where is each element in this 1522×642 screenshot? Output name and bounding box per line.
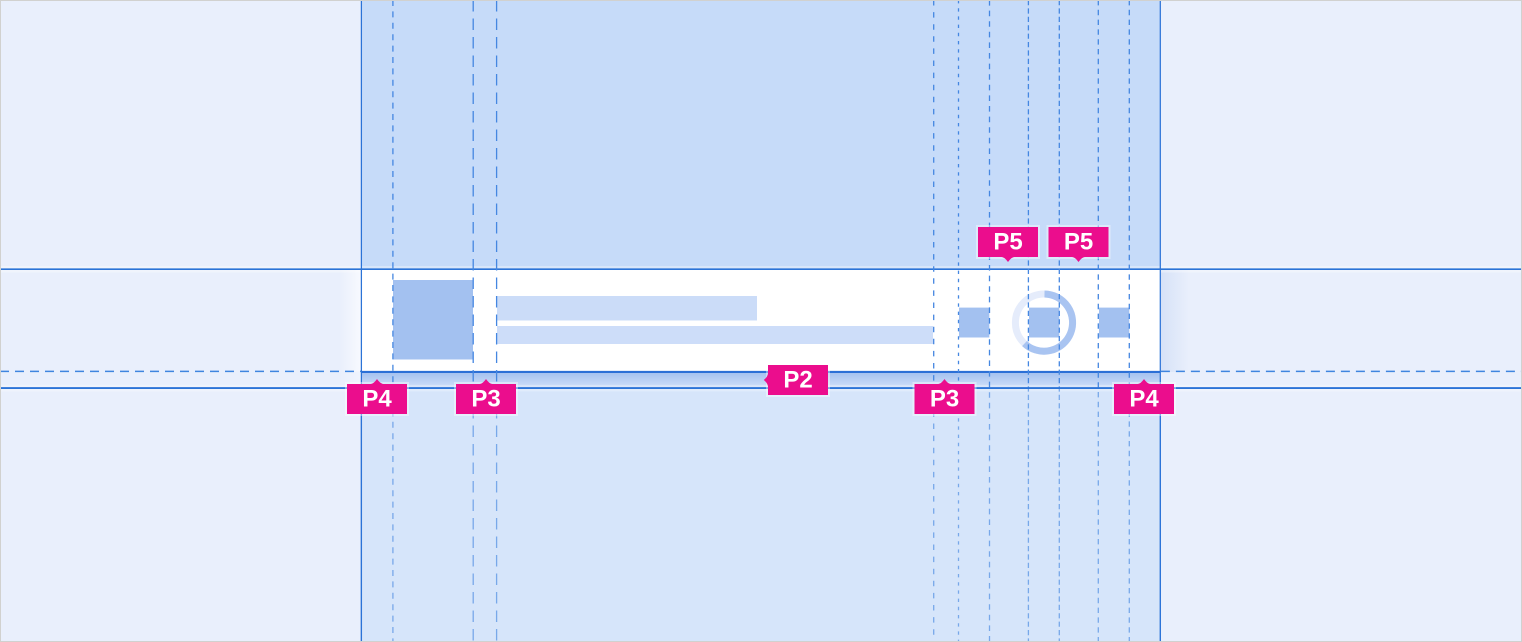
svg-text:P3: P3 [930, 386, 959, 413]
svg-text:P5: P5 [993, 229, 1022, 256]
svg-text:P4: P4 [362, 386, 392, 413]
svg-text:P4: P4 [1129, 386, 1159, 413]
svg-text:P3: P3 [471, 386, 500, 413]
svg-text:P2: P2 [783, 367, 812, 394]
svg-text:P5: P5 [1064, 229, 1093, 256]
